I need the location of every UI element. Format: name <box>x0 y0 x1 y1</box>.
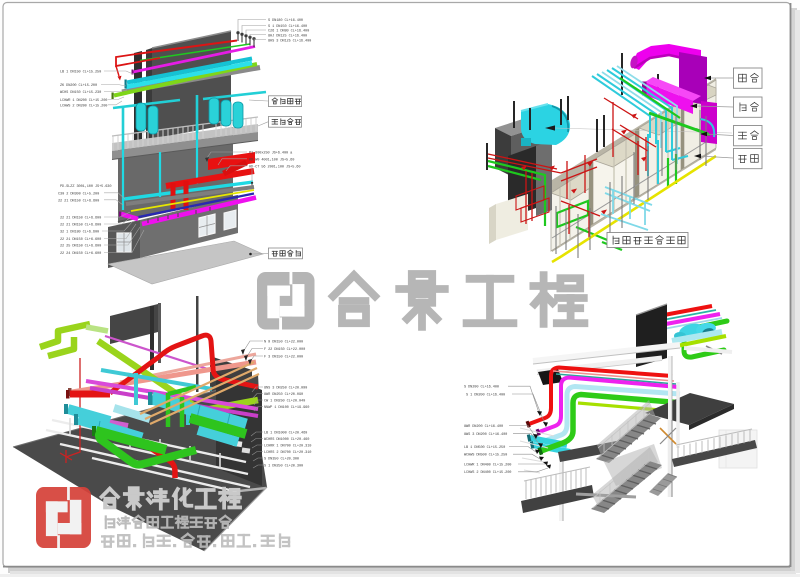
svg-text:ZK DN200 CL+15.200: ZK DN200 CL+15.200 <box>60 84 97 88</box>
svg-text:WCHS DN150 CL+15.230: WCHS DN150 CL+15.230 <box>60 91 101 95</box>
svg-text:WCHWS DN500 CL+15.250: WCHWS DN500 CL+15.250 <box>464 454 507 458</box>
svg-text:HD-CT 56 2001,100 JS+5.60: HD-CT 56 2001,100 JS+5.60 <box>249 165 300 169</box>
svg-text:LCHWR 1 DN400 CL+15.200: LCHWR 1 DN400 CL+15.200 <box>464 463 511 467</box>
svg-text:F 3 DN150 CL+22.000: F 3 DN150 CL+22.000 <box>264 356 303 360</box>
svg-text:PD-SLZZ 3001,100 JS+5.630: PD-SLZZ 3001,100 JS+5.630 <box>60 185 111 189</box>
svg-text:CW 1 DN250 CL+20.040: CW 1 DN250 CL+20.040 <box>264 400 305 404</box>
svg-text:8HJ DN125 CL+16.400: 8HJ DN125 CL+16.400 <box>268 34 307 38</box>
svg-text:C26 1 DN80 CL+16.400: C26 1 DN80 CL+16.400 <box>268 30 309 34</box>
svg-text:22 21 DN150 CL+6.600: 22 21 DN150 CL+6.600 <box>60 224 101 228</box>
svg-text:NNWP 1 DN100 CL+19.960: NNWP 1 DN100 CL+19.960 <box>264 406 309 410</box>
svg-text:8WR DN250 CL+20.090: 8WR DN250 CL+20.090 <box>264 393 303 397</box>
svg-text:LCHWR 1 DN200 CL+15.200: LCHWR 1 DN200 CL+15.200 <box>60 99 107 103</box>
svg-text:22 21 DN150 CL+6.600: 22 21 DN150 CL+6.600 <box>58 199 99 203</box>
svg-text:22 21 DN150 CL+6.600: 22 21 DN150 CL+6.600 <box>60 238 101 242</box>
svg-text:LB 1 DN500 CL+15.250: LB 1 DN500 CL+15.250 <box>464 446 505 450</box>
svg-text:HD.W0 4001,100 JS+5.60: HD.W0 4001,100 JS+5.60 <box>249 158 294 162</box>
svg-text:C30 2 DN300 CL+5.200: C30 2 DN300 CL+5.200 <box>58 192 99 196</box>
svg-text:LCHRR 1 DN700 CL+20.310: LCHRR 1 DN700 CL+20.310 <box>264 445 311 449</box>
svg-text:S DN180 CL+16.400: S DN180 CL+16.400 <box>268 19 303 23</box>
svg-text:S 1 DN250 CL+20.300: S 1 DN250 CL+20.300 <box>264 465 303 469</box>
svg-text:WCHRS DN1000 CL+20.460: WCHRS DN1000 CL+20.460 <box>264 438 309 442</box>
svg-text:8HS 3 DN125 CL+16.400: 8HS 3 DN125 CL+16.400 <box>268 40 311 44</box>
svg-text:8WR DN200 CL+16.400: 8WR DN200 CL+16.400 <box>464 425 503 429</box>
svg-text:32 1 DN180 CL+6.600: 32 1 DN180 CL+6.600 <box>60 230 99 234</box>
svg-text:8WS 3 DN200 CL+16.400: 8WS 3 DN200 CL+16.400 <box>464 433 507 437</box>
svg-text:P1 800x250 JS+6.400 a: P1 800x250 JS+6.400 a <box>249 152 293 156</box>
svg-text:8NS 3 DN250 CL+20.090: 8NS 3 DN250 CL+20.090 <box>264 387 307 391</box>
svg-text:S 1 DN150 CL+16.400: S 1 DN150 CL+16.400 <box>268 25 307 29</box>
svg-text:S DN200 CL+16.400: S DN200 CL+16.400 <box>464 386 499 390</box>
svg-text:S 1 DN200 CL+16.400: S 1 DN200 CL+16.400 <box>466 393 505 397</box>
svg-text:22 21 DN150 CL+6.600: 22 21 DN150 CL+6.600 <box>60 217 101 221</box>
svg-text:22 25 DN150 CL+6.600: 22 25 DN150 CL+6.600 <box>60 244 101 248</box>
svg-text:LB 1 DN1000 CL+20.460: LB 1 DN1000 CL+20.460 <box>264 432 307 436</box>
svg-text:22 24 DN150 CL+6.600: 22 24 DN150 CL+6.600 <box>60 252 101 256</box>
svg-text:LCHWS 2 DN400 CL+15.200: LCHWS 2 DN400 CL+15.200 <box>464 471 511 475</box>
svg-text:LCHWS 2 DN200 CL+15.200: LCHWS 2 DN200 CL+15.200 <box>60 104 107 108</box>
svg-text:N 9 DN150 CL+22.000: N 9 DN150 CL+22.000 <box>264 341 303 345</box>
svg-text:F 22 DN150 CL+22.000: F 22 DN150 CL+22.000 <box>264 348 305 352</box>
svg-text:LB 1 DN150 CL+15.250: LB 1 DN150 CL+15.250 <box>60 71 101 75</box>
svg-text:LCHRS 2 DN700 CL+20.310: LCHRS 2 DN700 CL+20.310 <box>264 451 311 455</box>
svg-text:S DN350 CL+20.300: S DN350 CL+20.300 <box>264 458 299 462</box>
